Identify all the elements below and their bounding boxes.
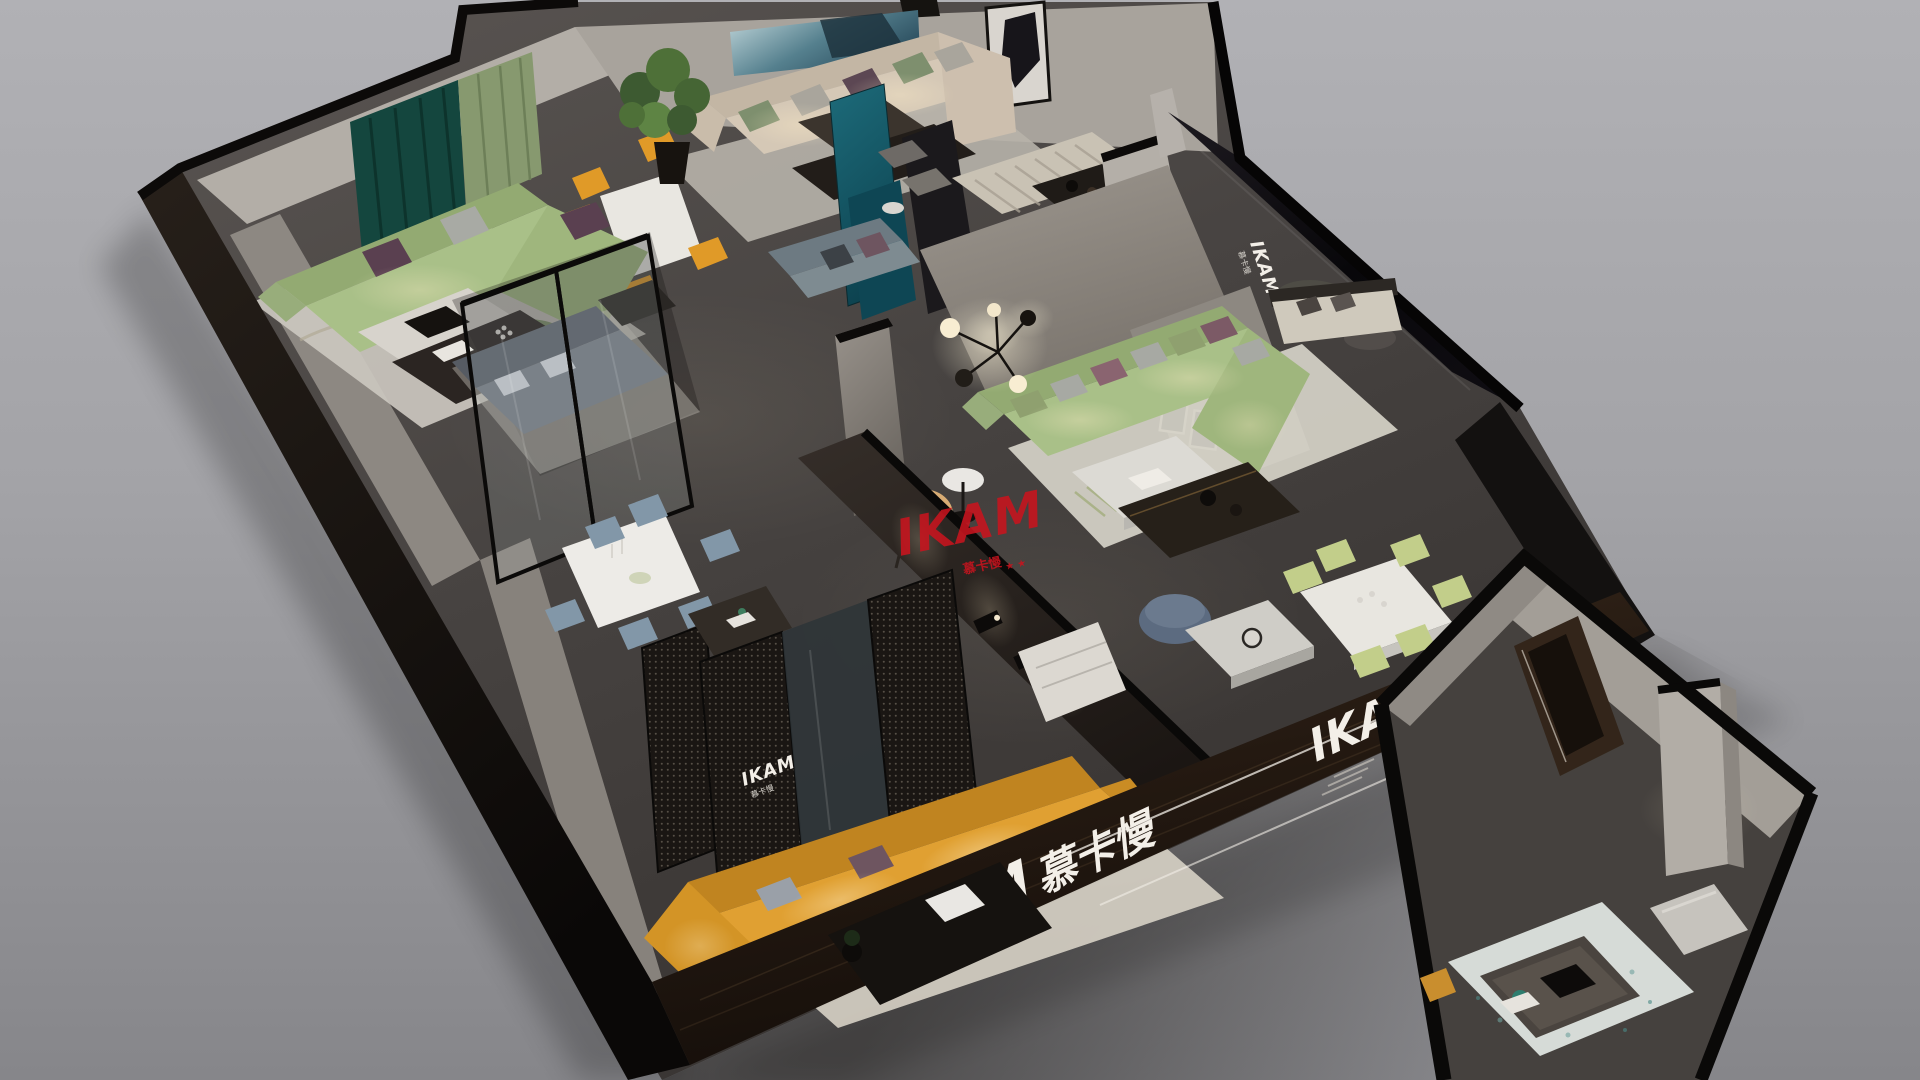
fruit-bowl xyxy=(629,572,651,584)
sofa-light xyxy=(1212,399,1288,451)
bowl xyxy=(1200,490,1216,506)
bowl xyxy=(1230,504,1242,516)
bowl xyxy=(1066,180,1078,192)
sputnik-chandelier xyxy=(932,297,1048,393)
sofa-light xyxy=(1135,358,1245,398)
side-table-round xyxy=(882,202,904,214)
showroom-render: IKAM 慕卡慢 xyxy=(0,0,1920,1080)
pouf-top xyxy=(1145,594,1205,628)
plant xyxy=(844,930,860,946)
sofa-light xyxy=(1025,400,1135,440)
decor-bowl xyxy=(1243,629,1261,647)
